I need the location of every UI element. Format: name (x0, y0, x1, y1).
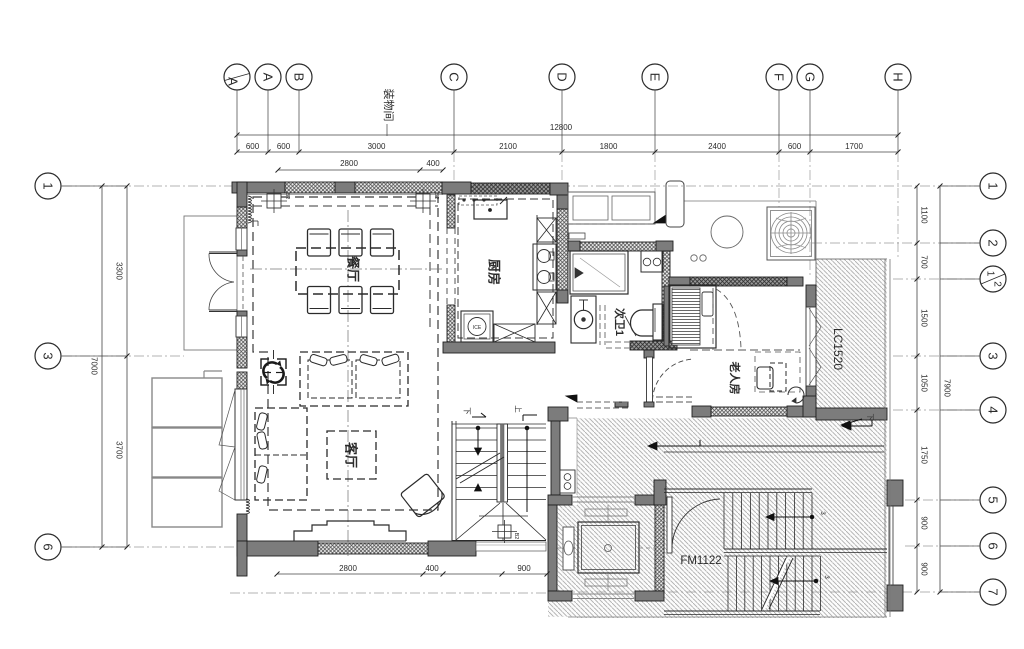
svg-text:1: 1 (985, 271, 996, 277)
svg-text:A: A (261, 73, 276, 82)
svg-text:次卫1: 次卫1 (613, 308, 627, 336)
svg-text:3: 3 (41, 352, 56, 359)
svg-text:老人房: 老人房 (728, 361, 742, 395)
svg-text:B2: B2 (433, 193, 439, 200)
svg-text:4: 4 (986, 406, 1001, 413)
svg-text:6: 6 (986, 542, 1001, 549)
svg-text:F: F (772, 73, 787, 81)
svg-text:3000: 3000 (368, 142, 386, 151)
svg-text:1100: 1100 (920, 206, 929, 224)
svg-text:下: 下 (866, 414, 874, 421)
svg-text:下: 下 (463, 407, 472, 415)
svg-text:7000: 7000 (90, 357, 99, 375)
svg-text:400: 400 (425, 564, 439, 573)
svg-text:餐厅: 餐厅 (346, 255, 361, 282)
svg-text:1700: 1700 (845, 142, 863, 151)
svg-text:1500: 1500 (920, 309, 929, 327)
svg-text:C: C (447, 72, 462, 81)
svg-text:900: 900 (920, 562, 929, 576)
svg-text:6: 6 (41, 543, 56, 550)
svg-text:7: 7 (986, 588, 1001, 595)
svg-text:LC1520: LC1520 (831, 328, 845, 370)
svg-text:7900: 7900 (943, 379, 952, 397)
svg-text:600: 600 (246, 142, 260, 151)
svg-text:FM1122: FM1122 (680, 555, 721, 567)
svg-text:客厅: 客厅 (344, 442, 359, 468)
svg-text:900: 900 (517, 564, 531, 573)
svg-text:B2: B2 (284, 193, 290, 200)
svg-text:1: 1 (986, 182, 1001, 189)
svg-text:600: 600 (277, 142, 291, 151)
svg-text:700: 700 (920, 255, 929, 269)
svg-text:A: A (226, 77, 241, 86)
svg-text:12800: 12800 (550, 123, 573, 132)
svg-text:1: 1 (41, 182, 56, 189)
svg-text:1800: 1800 (600, 142, 618, 151)
svg-text:ICE: ICE (473, 325, 482, 331)
svg-text:3700: 3700 (115, 441, 124, 459)
svg-text:装物间: 装物间 (382, 89, 396, 122)
svg-text:D: D (555, 72, 570, 81)
svg-text:900: 900 (920, 516, 929, 530)
svg-text:2800: 2800 (340, 159, 358, 168)
svg-text:1750: 1750 (920, 446, 929, 464)
svg-text:400: 400 (426, 159, 440, 168)
svg-text:2400: 2400 (708, 142, 726, 151)
svg-text:B: B (292, 73, 307, 82)
svg-text:G: G (803, 72, 818, 82)
svg-text:600: 600 (788, 142, 802, 151)
svg-text:上: 上 (514, 405, 523, 413)
svg-text:2: 2 (992, 281, 1003, 287)
svg-text:H: H (891, 72, 906, 81)
svg-text:1050: 1050 (920, 374, 929, 392)
svg-text:2100: 2100 (499, 142, 517, 151)
svg-text:厨房: 厨房 (487, 259, 502, 285)
svg-text:3300: 3300 (115, 262, 124, 280)
svg-text:5: 5 (986, 496, 1001, 503)
svg-text:3: 3 (986, 352, 1001, 359)
svg-text:E: E (648, 73, 663, 82)
svg-text:2800: 2800 (339, 564, 357, 573)
svg-text:2: 2 (986, 239, 1001, 246)
svg-text:B2: B2 (513, 533, 519, 540)
